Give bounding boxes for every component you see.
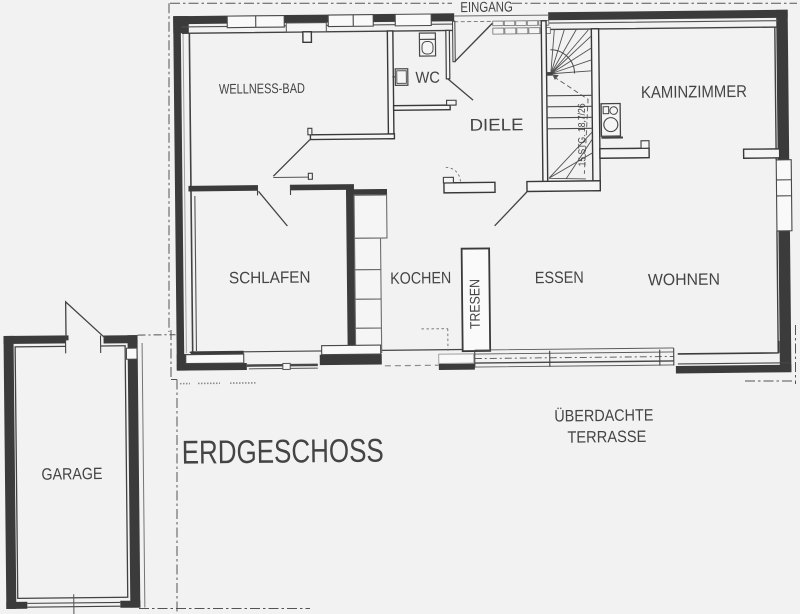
- svg-text:WOHNEN: WOHNEN: [648, 271, 720, 290]
- svg-text:ESSEN: ESSEN: [535, 269, 584, 288]
- svg-text:SCHLAFEN: SCHLAFEN: [229, 269, 311, 288]
- svg-text:GARAGE: GARAGE: [41, 465, 102, 484]
- svg-text:WELLNESS-BAD: WELLNESS-BAD: [219, 80, 305, 97]
- svg-text:15 STG. 18,7/26: 15 STG. 18,7/26: [577, 103, 589, 166]
- svg-text:KOCHEN: KOCHEN: [390, 269, 451, 288]
- svg-text:EINGANG: EINGANG: [460, 0, 513, 16]
- svg-text:ERDGESCHOSS: ERDGESCHOSS: [182, 432, 384, 471]
- svg-text:WC: WC: [415, 70, 440, 87]
- svg-text:TERRASSE: TERRASSE: [567, 428, 646, 447]
- svg-text:TRESEN: TRESEN: [466, 279, 483, 329]
- svg-text:KAMINZIMMER: KAMINZIMMER: [641, 82, 747, 102]
- svg-text:DIELE: DIELE: [469, 115, 523, 135]
- svg-text:ÜBERDACHTE: ÜBERDACHTE: [554, 406, 653, 425]
